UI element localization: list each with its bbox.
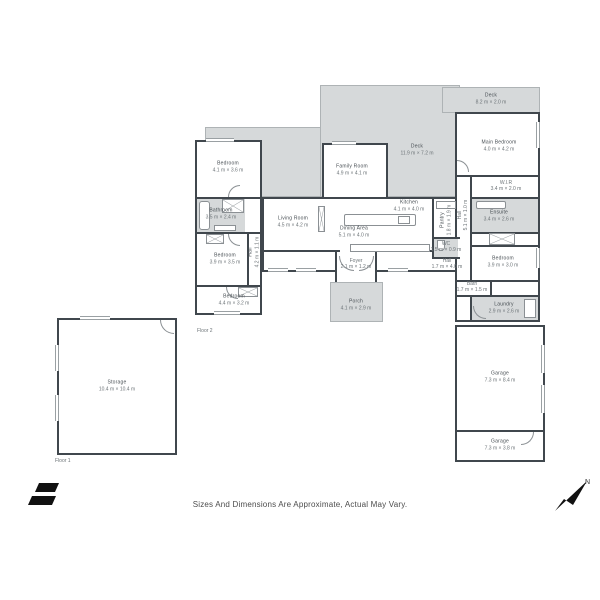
window <box>206 138 234 142</box>
room-label-bedroom-mid-left: Bedroom 3.9 m × 3.5 m <box>210 253 241 266</box>
floor-1-label: Floor 1 <box>55 458 71 464</box>
wall <box>490 280 492 295</box>
room-label-laundry: Laundry 2.9 m × 2.6 m <box>489 302 520 315</box>
kitchen-bench <box>350 244 430 252</box>
window <box>536 122 540 148</box>
room-label-main-bedroom: Main Bedroom 4.0 m × 4.2 m <box>482 140 517 153</box>
window <box>536 248 540 268</box>
room-label-family-room: Family Room 4.9 m × 4.1 m <box>336 164 368 177</box>
room-label-bath: Bath 1.7 m × 1.5 m <box>457 281 488 293</box>
wall <box>455 175 540 177</box>
room-label-pantry: Pantry 1.8 m × 1.9 m <box>440 205 453 236</box>
room-label-dining-area: Dining Area 5.1 m × 4.0 m <box>339 226 370 239</box>
robe <box>489 233 515 245</box>
room-label-porch: Porch 4.1 m × 2.9 m <box>341 299 372 312</box>
floor-2-label: Floor 2 <box>197 328 213 334</box>
room-label-bathroom: Bathroom 3.5 m × 2.4 m <box>206 208 237 221</box>
wall <box>470 245 540 247</box>
room-label-bedroom-top-left: Bedroom 4.1 m × 3.6 m <box>213 161 244 174</box>
room-label-hall-left: Hall 4.2 m × 1.1 m <box>248 237 261 268</box>
window <box>80 316 110 320</box>
room-label-hall-right: Hall 5.1 m × 1.0 m <box>457 200 469 231</box>
room-label-kitchen: Kitchen 4.1 m × 4.0 m <box>394 200 425 213</box>
room-label-living-room: Living Room 4.5 m × 4.2 m <box>278 216 309 229</box>
room-label-hall-center: Hall 1.7 m × 4.0 m <box>432 258 463 270</box>
room-label-garage-second: Garage 7.3 m × 3.8 m <box>485 439 516 452</box>
room-label-deck-top: Deck 8.2 m × 2.0 m <box>476 93 507 106</box>
room-label-foyer: Foyer 2.1 m × 1.2 m <box>341 258 372 270</box>
room-label-wir: W.I.R 3.4 m × 2.0 m <box>491 180 522 192</box>
brand-logo <box>26 480 60 510</box>
bathroom-vanity <box>214 225 236 231</box>
room-label-ensuite: Ensuite 3.4 m × 2.6 m <box>484 210 515 223</box>
north-label: N <box>585 479 590 486</box>
room-label-storage: Storage 10.4 m × 10.4 m <box>99 380 135 393</box>
ensuite-bathtub <box>476 201 506 209</box>
room-label-bedroom-bottom-left: Bedroom 4.4 m × 3.2 m <box>219 294 250 307</box>
room-label-bedroom-right: Bedroom 3.9 m × 3.0 m <box>488 256 519 269</box>
window <box>332 141 356 145</box>
fireplace <box>318 206 325 232</box>
window <box>296 268 316 272</box>
disclaimer-text: Sizes And Dimensions Are Approximate, Ac… <box>193 500 408 509</box>
kitchen-sink <box>398 216 410 224</box>
window <box>268 268 288 272</box>
window <box>55 395 59 421</box>
window <box>541 345 545 373</box>
floor-plan-page: Bedroom 4.1 m × 3.6 m Bathroom 3.5 m × 2… <box>0 0 600 600</box>
room-label-wc: WC 1.5 m × 0.9 m <box>431 241 462 253</box>
room-label-deck-main: Deck 11.9 m × 7.2 m <box>400 144 433 157</box>
window <box>55 345 59 371</box>
window <box>214 311 240 315</box>
wall <box>262 250 340 252</box>
laundry-bench <box>524 299 536 318</box>
north-arrow-icon: N <box>552 474 594 514</box>
window <box>388 268 408 272</box>
room-label-garage-main: Garage 7.3 m × 8.4 m <box>485 371 516 384</box>
robe <box>206 234 224 244</box>
window <box>541 385 545 413</box>
